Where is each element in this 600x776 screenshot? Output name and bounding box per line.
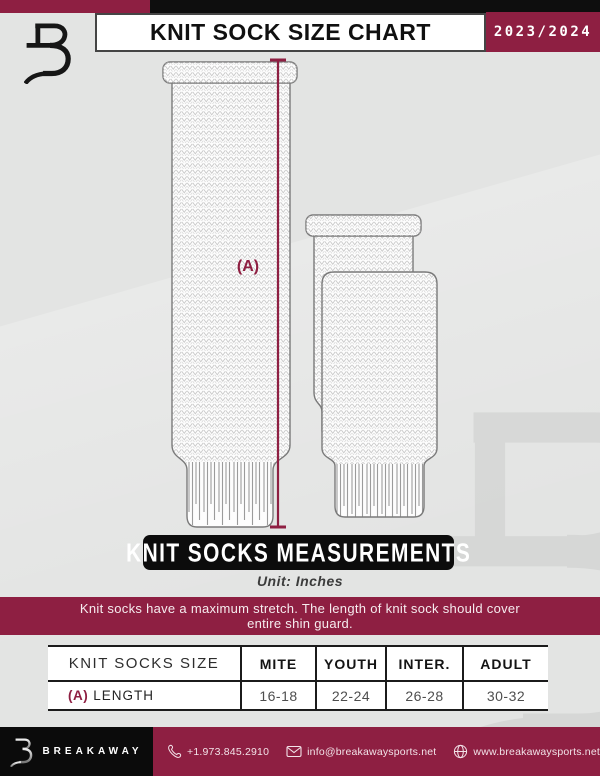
note-text: Knit socks have a maximum stretch. The l… (78, 601, 523, 631)
email-address: info@breakawaysports.net (307, 746, 436, 758)
row-label-text: LENGTH (93, 688, 154, 703)
value-adult: 30-32 (462, 682, 548, 709)
footer-brand-block: BREAKAWAY (0, 727, 153, 776)
contact-email: info@breakawaysports.net (286, 745, 436, 758)
value-mite: 16-18 (240, 682, 315, 709)
contact-website: www.breakawaysports.net (453, 744, 600, 759)
contact-phone: +1.973.845.2910 (167, 744, 269, 759)
season-badge: 2023/2024 (486, 12, 600, 52)
email-icon (286, 745, 302, 758)
page-title: KNIT SOCK SIZE CHART (150, 19, 431, 46)
footer: BREAKAWAY +1.973.845.2910 info@breakaway… (0, 727, 600, 776)
unit-line: Unit: Inches (0, 573, 600, 591)
header-inter: INTER. (385, 647, 462, 680)
row-label-prefix: (A) (68, 688, 88, 703)
brand-logo-icon (24, 18, 76, 84)
header-knit-socks-size: KNIT SOCKS SIZE (48, 647, 240, 680)
header-mite: MITE (240, 647, 315, 680)
row-label-length: (A) LENGTH (48, 682, 240, 709)
page: KNIT SOCK SIZE CHART 2023/2024 (0, 0, 600, 776)
footer-contact-block: +1.973.845.2910 info@breakawaysports.net… (153, 727, 600, 776)
header-adult: ADULT (462, 647, 548, 680)
table-row: (A) LENGTH 16-18 22-24 26-28 30-32 (48, 682, 548, 709)
phone-icon (167, 744, 182, 759)
footer-brand-logo-icon (10, 736, 35, 767)
value-inter: 26-28 (385, 682, 462, 709)
measurements-banner-label: KNIT SOCKS MEASUREMENTS (126, 537, 471, 568)
unit-label: Unit: Inches (257, 573, 343, 589)
phone-number: +1.973.845.2910 (187, 746, 269, 758)
top-stripe-maroon (0, 0, 150, 13)
size-table: KNIT SOCKS SIZE MITE YOUTH INTER. ADULT … (48, 645, 548, 711)
globe-icon (453, 744, 468, 759)
website-url: www.breakawaysports.net (473, 746, 600, 758)
season-label: 2023/2024 (494, 24, 592, 40)
value-youth: 22-24 (315, 682, 385, 709)
page-title-box: KNIT SOCK SIZE CHART (95, 13, 486, 52)
footer-brand-name: BREAKAWAY (42, 746, 142, 757)
table-header-row: KNIT SOCKS SIZE MITE YOUTH INTER. ADULT (48, 647, 548, 682)
note-banner: Knit socks have a maximum stretch. The l… (0, 597, 600, 635)
measurements-banner: KNIT SOCKS MEASUREMENTS (143, 535, 454, 570)
header-youth: YOUTH (315, 647, 385, 680)
